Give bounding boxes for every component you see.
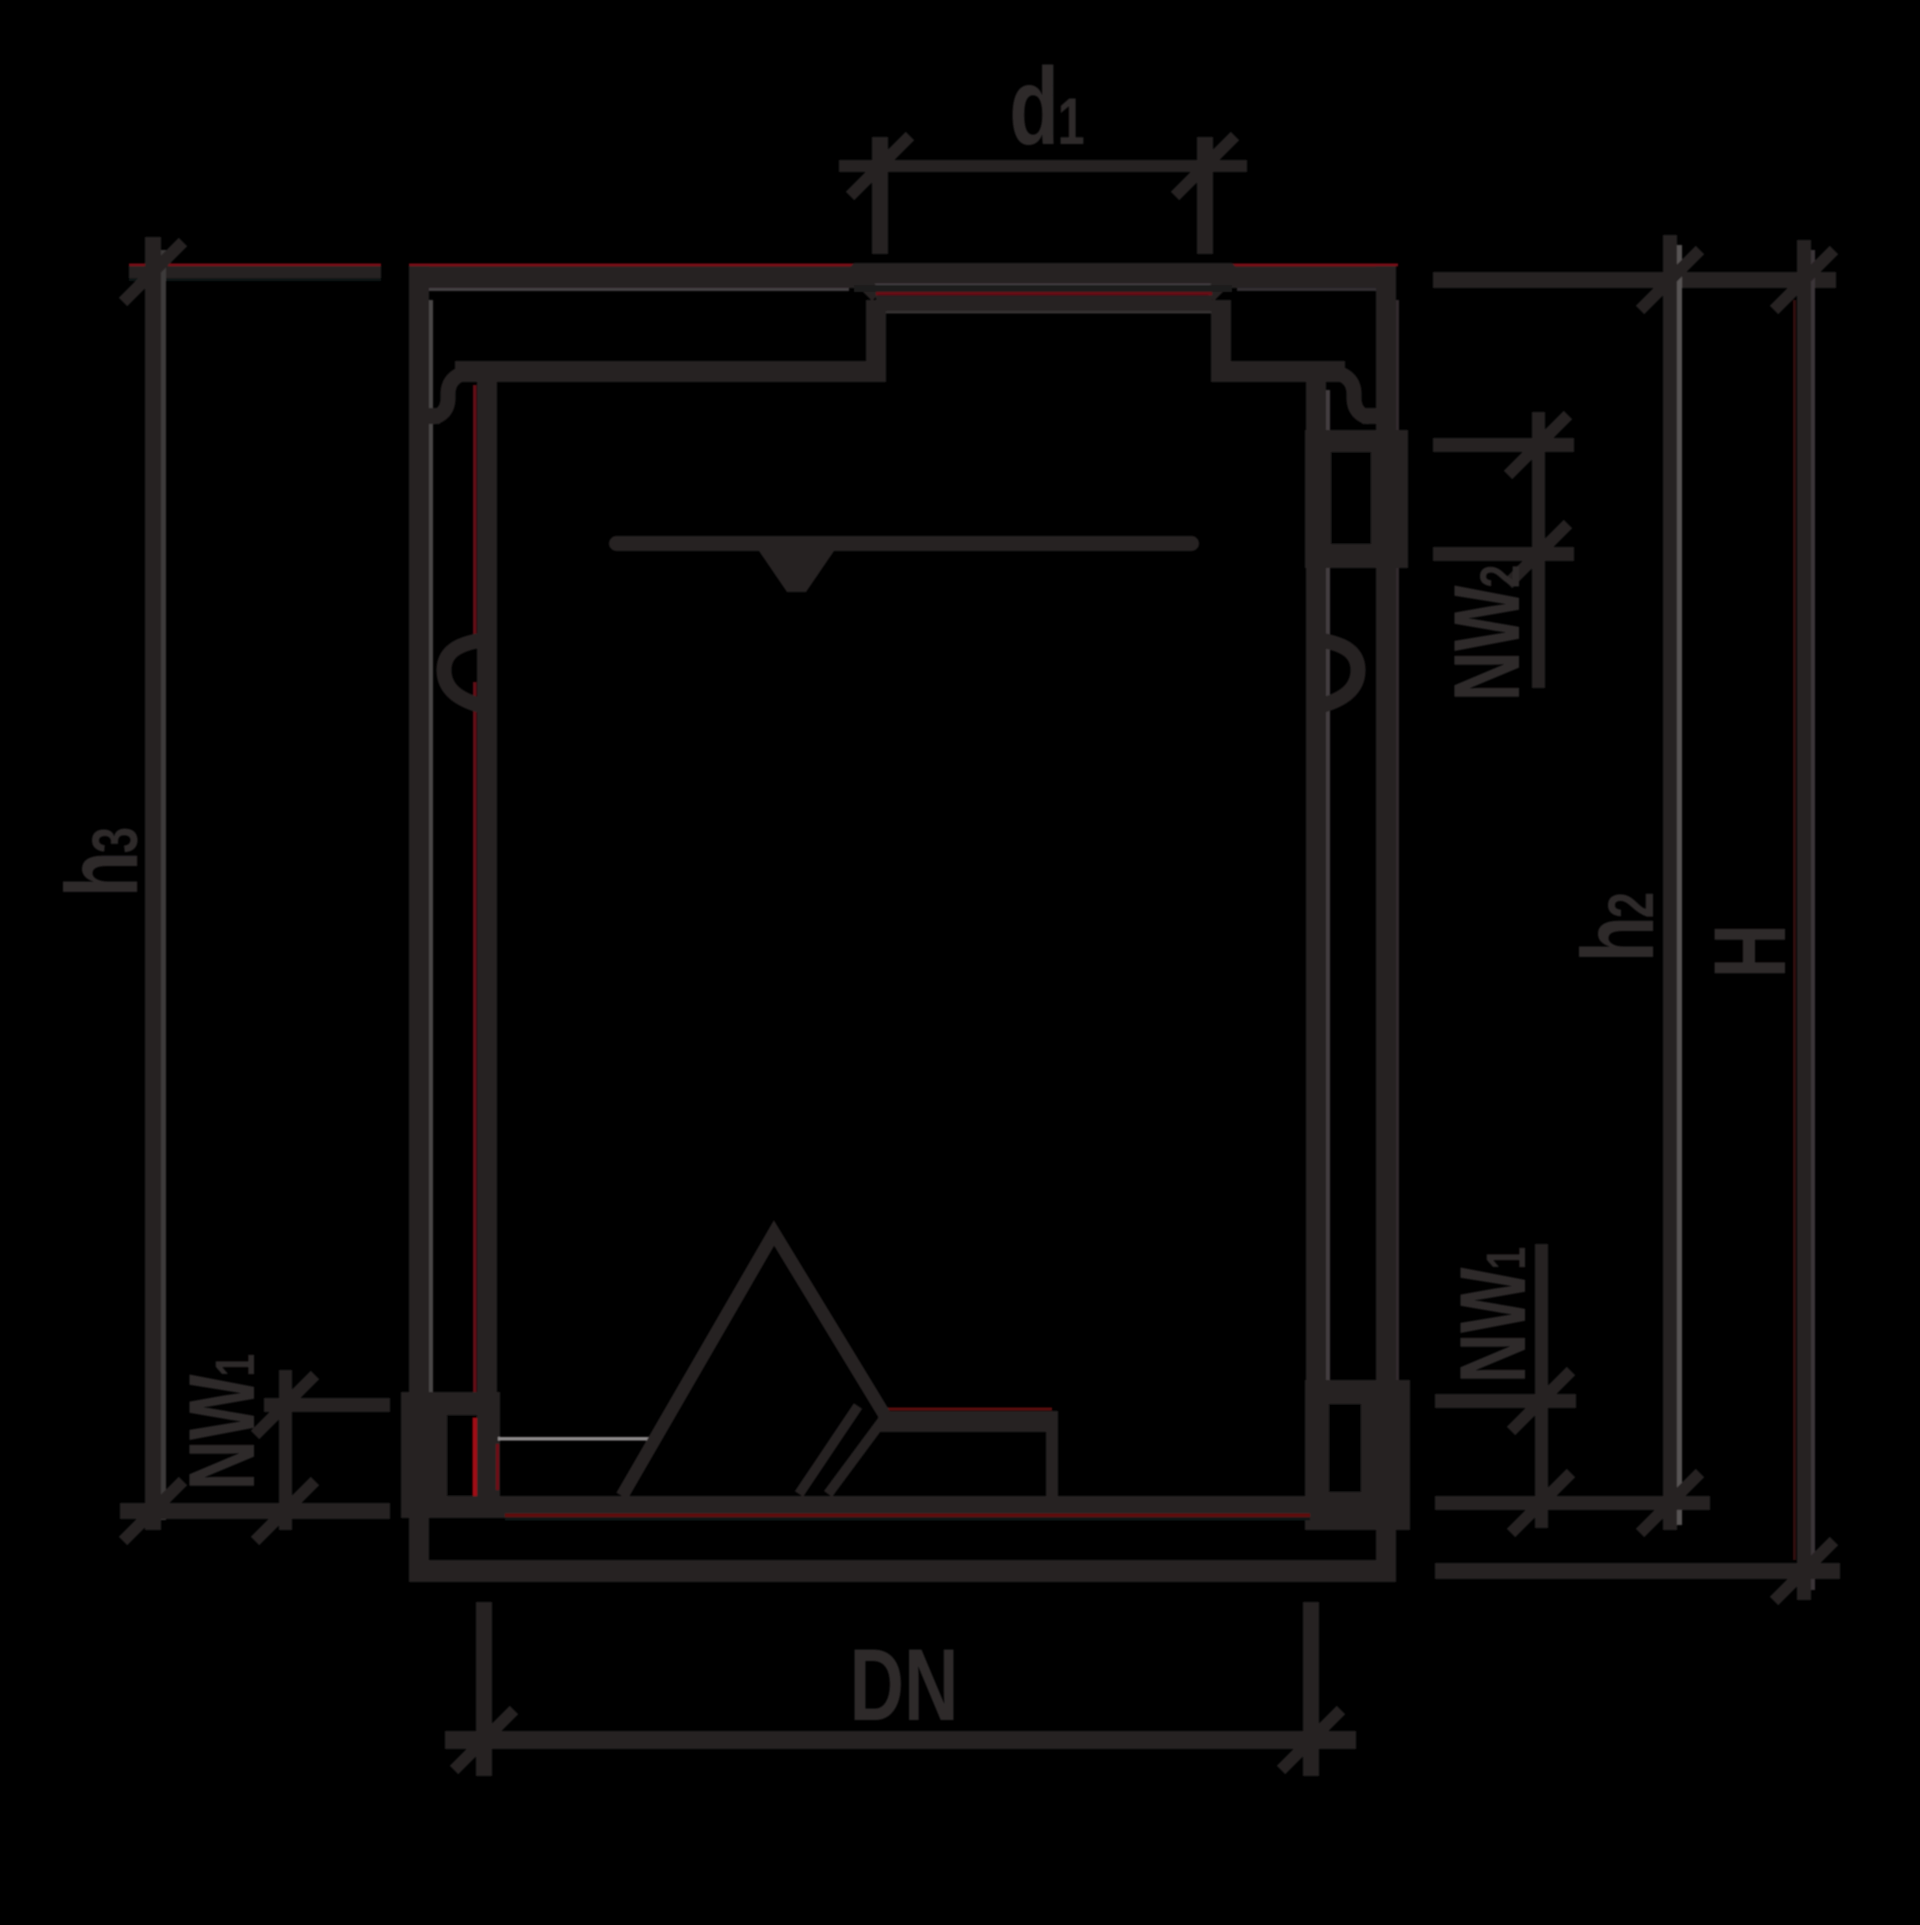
svg-text:DN: DN	[849, 1629, 958, 1743]
svg-text:H: H	[1694, 924, 1808, 979]
